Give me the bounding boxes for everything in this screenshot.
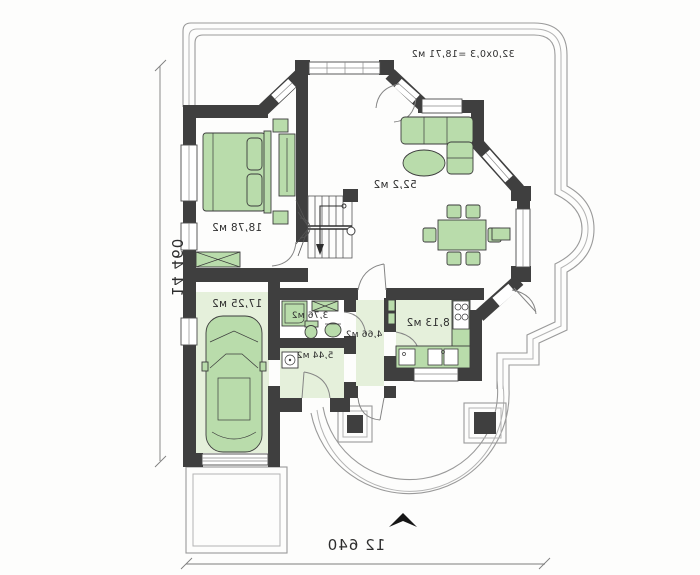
floor-plan-canvas: 32,0x0,3 =18,71 м2 18,78 м2 52,2 м2 17,2… [0, 0, 700, 575]
bedroom-area-label: 18,78 м2 [212, 222, 262, 234]
dishwasher [399, 349, 415, 365]
furniture [196, 117, 510, 452]
stairs-post [343, 189, 358, 202]
car [202, 316, 266, 452]
living-area-label: 52,2 м2 [373, 179, 416, 191]
bed [203, 131, 271, 213]
entry-area-label: 5,44 м2 [297, 351, 334, 361]
dresser [196, 252, 240, 267]
bay-windowsill-shelf [492, 228, 510, 240]
kitchen-window [414, 367, 458, 381]
bedroom-window-left [181, 145, 197, 201]
driveway [186, 467, 287, 553]
garage-window-left [181, 318, 197, 345]
corridor-area-label: 4,66 м2 [346, 330, 383, 340]
corridor-floor [356, 300, 384, 386]
hall-corridor-door-arc [358, 264, 384, 290]
toilet [305, 321, 318, 339]
wardrobe [279, 134, 295, 196]
nightstand-bottom [273, 211, 288, 224]
width-dimension-label: 12 640 [327, 536, 386, 554]
bedroom-bay-window-angled [275, 83, 292, 99]
depth-dimension-label: 14 460 [168, 238, 186, 297]
floor-plan-drawing: 32,0x0,3 =18,71 м2 18,78 м2 52,2 м2 17,2… [0, 0, 700, 575]
stove [453, 301, 469, 329]
se-terrace-door-arc [512, 290, 536, 314]
bedroom-door-arc [272, 242, 296, 266]
pantry-cabinet [388, 313, 395, 324]
fridge [388, 300, 395, 311]
coffee-table [403, 150, 445, 176]
se-terrace-door-leaf [514, 288, 536, 312]
porch-door-leaf [380, 398, 384, 420]
top-bay-window [309, 62, 380, 74]
garage-area-label: 17,25 м2 [212, 298, 262, 310]
handrail-end [347, 227, 355, 235]
hall-corridor-door-leaf [384, 264, 386, 290]
bathroom-cabinet [312, 301, 338, 311]
washing-machine [282, 352, 298, 368]
living-top-window [422, 99, 462, 113]
nightstand-top [273, 119, 288, 132]
terrace-note-label: 32,0x0,3 =18,71 м2 [411, 49, 515, 60]
dining-bay-window-east [516, 209, 530, 267]
bathroom-area-label: 3,76 м2 [292, 311, 329, 321]
kitchen-area-label: 8,13 м2 [406, 317, 449, 329]
dining-table-set [423, 205, 501, 265]
entrance-marker [389, 513, 417, 527]
corner-terrace-door-opening [398, 83, 416, 99]
garage-door-opening [202, 454, 268, 465]
bathroom-sink [325, 323, 341, 337]
